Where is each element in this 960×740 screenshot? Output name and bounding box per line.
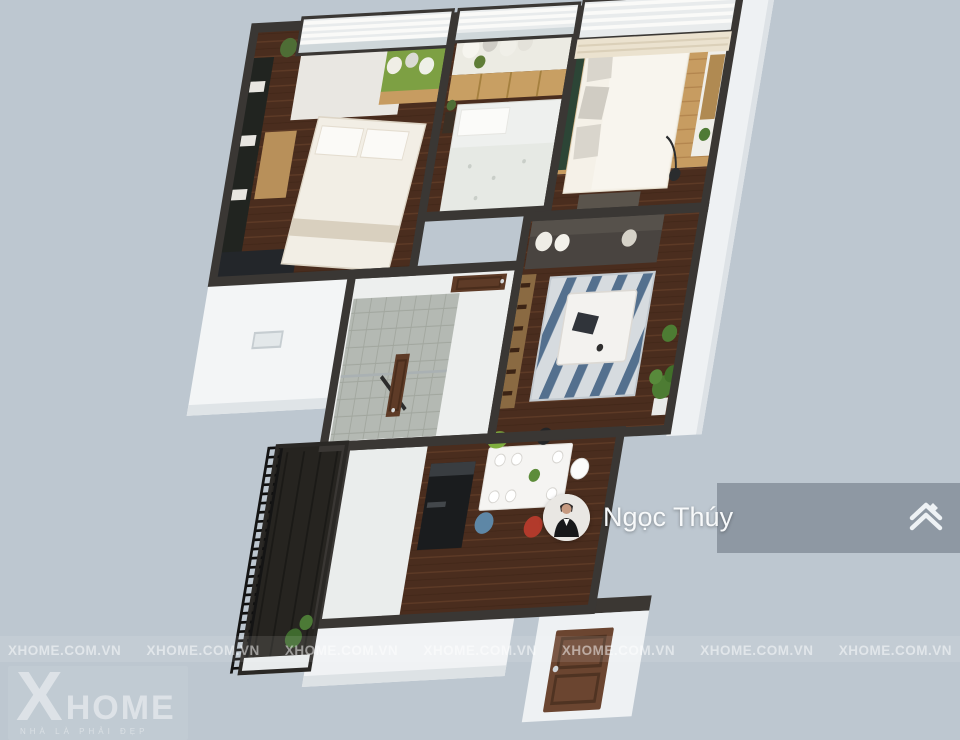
- coffee-table: [556, 290, 637, 365]
- brand-name: HOME: [66, 693, 176, 724]
- brand-tagline: NHÀ LÀ PHẢI ĐẸP: [20, 727, 176, 736]
- watermark-row: XHOME.COM.VN XHOME.COM.VN XHOME.COM.VN X…: [0, 643, 960, 658]
- user-chip: Ngọc Thúy: [543, 494, 733, 541]
- floorplan-render: [0, 0, 960, 740]
- floor-plan: [132, 0, 785, 740]
- watermark-text: XHOME.COM.VN: [8, 643, 121, 658]
- window-seat: [379, 48, 448, 105]
- screenshot-stage: Ngọc Thúy XHOME.COM.VN XHOME.COM.VN XHOM…: [0, 0, 960, 740]
- watermark-text: XHOME.COM.VN: [839, 643, 952, 658]
- sofa: [524, 213, 664, 270]
- master-window: [574, 0, 738, 59]
- bedroom-2-window: [454, 3, 580, 42]
- bedroom-1-window: [297, 10, 454, 55]
- watermark-text: XHOME.COM.VN: [146, 643, 259, 658]
- person-avatar: [543, 494, 590, 541]
- brand-mark: X: [16, 669, 63, 724]
- brand-logo: X HOME NHÀ LÀ PHẢI ĐẸP: [8, 666, 188, 740]
- wall-vent: [252, 332, 282, 349]
- wood-door-1: [451, 273, 508, 292]
- watermark-text: XHOME.COM.VN: [700, 643, 813, 658]
- user-name: Ngọc Thúy: [603, 502, 733, 533]
- watermark-text: XHOME.COM.VN: [285, 643, 398, 658]
- watermark-text: XHOME.COM.VN: [423, 643, 536, 658]
- watermark-text: XHOME.COM.VN: [562, 643, 675, 658]
- overlay-band: [717, 483, 960, 553]
- stacked-home-icon[interactable]: [904, 496, 948, 540]
- avatar-figure: [543, 494, 590, 541]
